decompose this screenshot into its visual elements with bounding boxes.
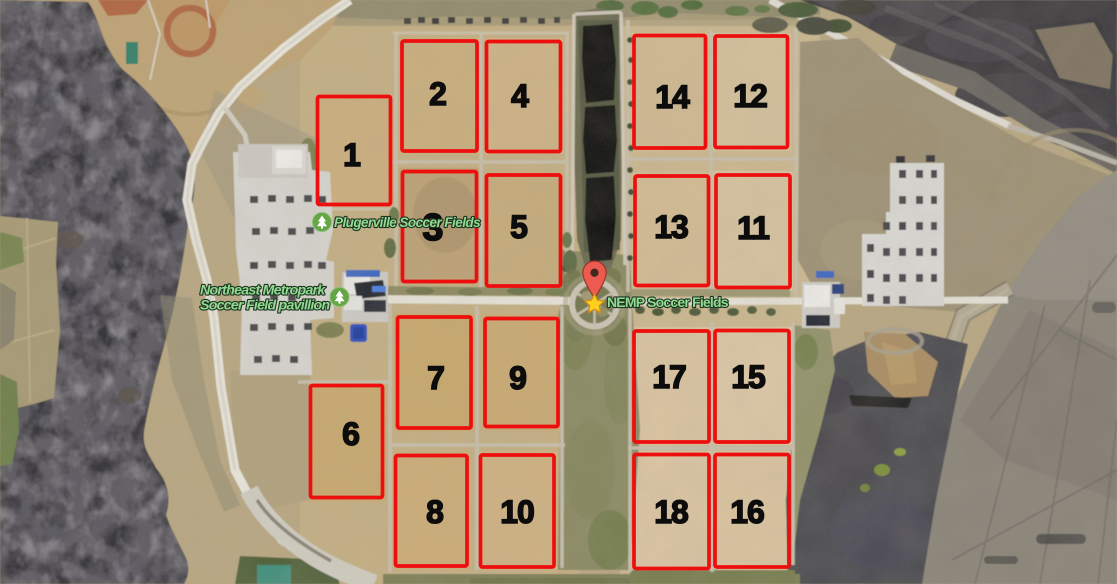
svg-text:8: 8: [426, 494, 444, 530]
svg-text:5: 5: [510, 209, 528, 245]
svg-text:9: 9: [509, 360, 527, 396]
svg-text:6: 6: [342, 416, 360, 452]
svg-text:1: 1: [343, 137, 361, 173]
svg-text:10: 10: [500, 494, 534, 530]
svg-text:14: 14: [655, 79, 690, 115]
svg-text:11: 11: [737, 210, 769, 246]
svg-text:18: 18: [654, 494, 688, 530]
svg-text:Northeast Metropark: Northeast Metropark: [200, 283, 326, 299]
svg-text:12: 12: [733, 78, 767, 114]
svg-text:Soccer Field pavillion: Soccer Field pavillion: [200, 298, 330, 314]
svg-text:4: 4: [511, 78, 529, 114]
svg-text:13: 13: [654, 209, 688, 245]
svg-text:Plugerville Soccer Fields: Plugerville Soccer Fields: [334, 215, 481, 230]
svg-text:2: 2: [429, 76, 447, 112]
svg-text:15: 15: [731, 359, 765, 395]
svg-text:17: 17: [652, 359, 686, 395]
svg-text:NEMP Soccer Fields: NEMP Soccer Fields: [607, 294, 729, 310]
svg-text:7: 7: [427, 360, 445, 396]
svg-text:16: 16: [730, 494, 764, 530]
